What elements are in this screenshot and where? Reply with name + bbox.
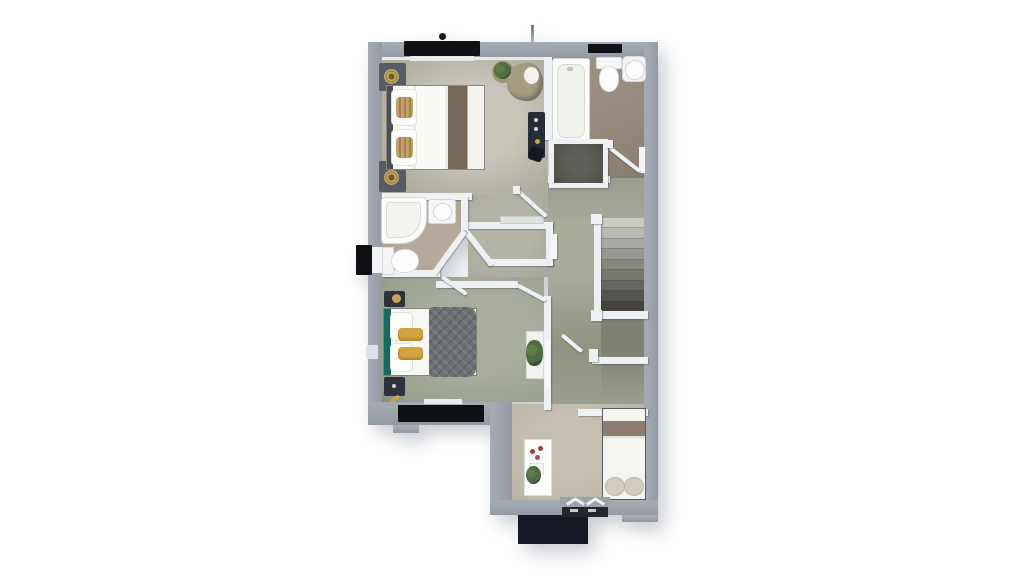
bay-window-band [562,507,608,517]
roof-vent-dot [439,33,446,40]
stair-tread [601,270,644,280]
potted-plant [526,340,543,366]
stair-tread [601,260,644,270]
cupboard-door [551,234,557,259]
floor-plan-canvas [0,0,1024,576]
exterior-wall-right [644,42,658,515]
table-lamp [384,69,399,84]
stair-tread [601,239,644,249]
master-door-post [513,186,520,194]
stair-tread [601,228,644,238]
stair-banister [594,218,601,318]
gold-cushion [396,97,413,118]
exterior-wall-bottom-step [622,515,658,522]
stair-tread [601,218,644,228]
window-bedroom2-rear [398,405,484,422]
gold-cushion [396,137,413,158]
window-master-sill [410,56,474,61]
hall-radiator [500,216,544,224]
bathtub [552,58,590,144]
armchair [507,63,543,101]
exterior-wall-left [368,42,382,425]
stair-tread [601,281,644,291]
yellow-pillow [398,328,423,341]
stairwell-guard-rail [592,357,648,364]
bathtub-faucet-icon [567,67,573,71]
porch-canopy [518,515,588,544]
railing-post [589,349,598,362]
shower-enclosure [549,139,608,188]
table-lamp [384,170,399,185]
stair-tread [601,291,644,301]
exterior-wall-stub [393,425,419,433]
bathroom-door-post [606,140,613,148]
cupboard-wall-south [488,259,553,266]
roof-aerial [531,25,534,42]
gold-trinket [535,139,540,144]
decor-item [538,446,543,451]
toilet [596,57,620,91]
stair-newel-top [591,214,602,224]
window-bedroom2-left-tab [366,345,378,359]
yellow-pillow [398,347,423,360]
nightstand [384,377,405,396]
window-ensuite-left [356,245,372,275]
bed-pillow [624,477,644,496]
decor-item [530,449,535,454]
potted-plant [526,466,541,484]
staircase [601,218,644,312]
ensuite-washbasin [428,199,456,224]
washbasin [622,56,646,82]
stair-bottom-rail [594,311,648,319]
quilted-duvet [429,307,476,377]
wall-master-bathroom [544,57,552,140]
decor-item [535,455,540,460]
ensuite-toilet [382,247,419,273]
stair-tread [601,249,644,259]
building-footprint [0,0,1024,576]
window-master-top [404,41,480,56]
window-bedroom2-sill [424,399,462,404]
exterior-wall-lower-left [490,402,512,515]
potted-plant [494,62,511,79]
bedroom3-bed [602,408,646,500]
armchair-cushion [524,67,539,84]
bedroom2-open-door [545,340,550,387]
bed-pillow [605,477,625,496]
window-ensuite-sill [372,247,382,273]
bay-window-handle [588,509,596,512]
table-lamp [392,294,401,303]
bay-window-handle [570,509,578,512]
window-bathroom-top [588,44,622,53]
tan-stripe-blanket [603,421,645,436]
stair-newel-bottom [591,310,602,321]
